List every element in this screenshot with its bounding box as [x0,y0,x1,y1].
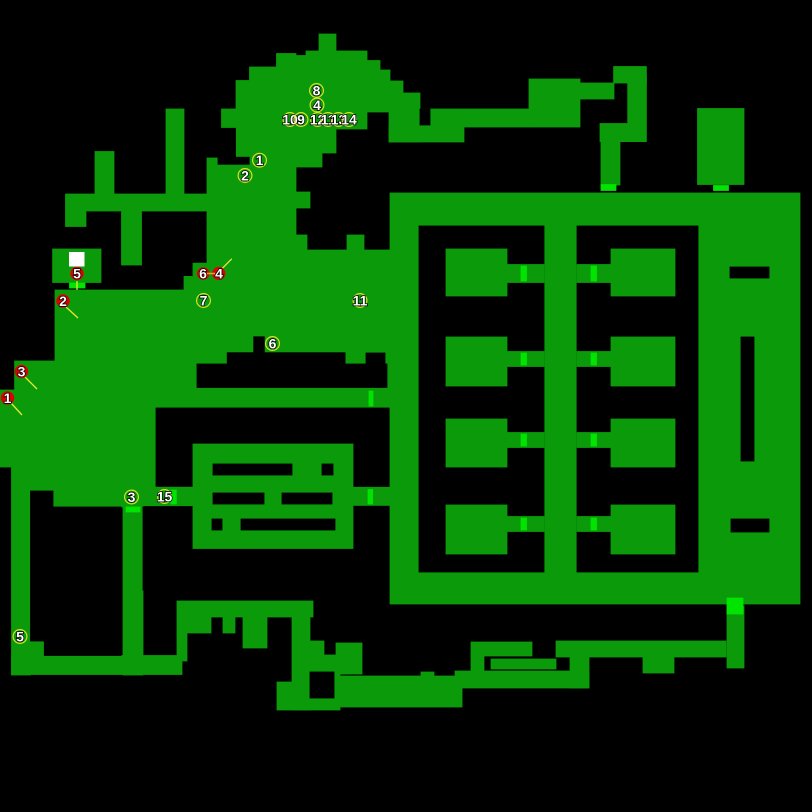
svg-text:3: 3 [128,489,136,505]
svg-text:14: 14 [341,111,357,127]
svg-text:2: 2 [241,167,249,183]
svg-text:7: 7 [200,292,208,308]
svg-text:4: 4 [215,265,223,281]
svg-text:3: 3 [18,363,26,379]
svg-text:10: 10 [282,111,298,127]
svg-text:6: 6 [269,335,277,351]
svg-text:1: 1 [4,390,12,406]
svg-text:5: 5 [16,628,24,644]
svg-text:6: 6 [199,265,207,281]
svg-text:11: 11 [353,292,368,308]
svg-text:5: 5 [73,265,81,281]
svg-text:2: 2 [59,293,67,309]
svg-text:1: 1 [256,152,264,168]
svg-text:15: 15 [157,488,173,504]
svg-text:9: 9 [297,111,305,127]
